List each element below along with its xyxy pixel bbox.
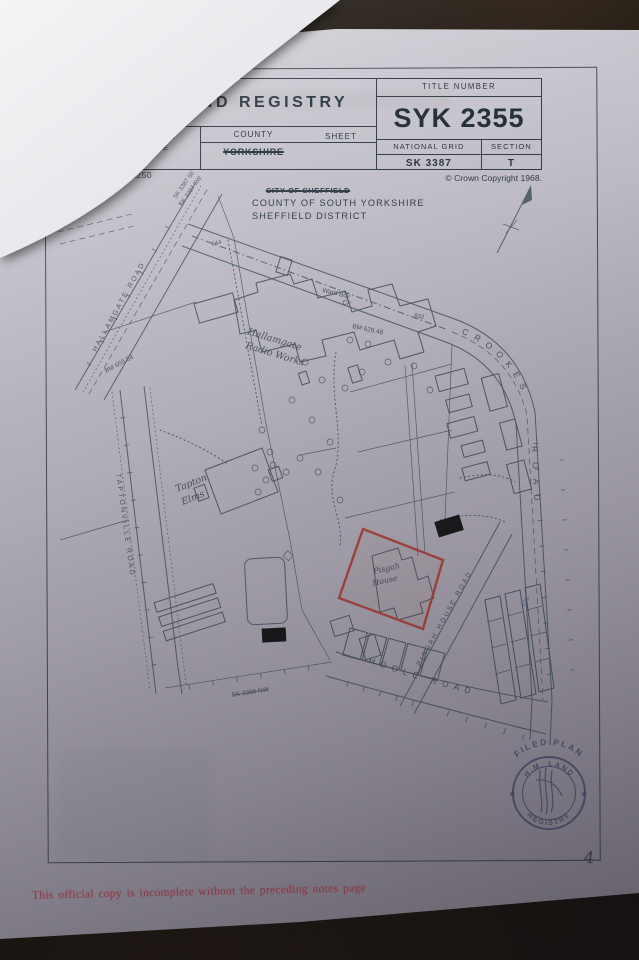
- road-edge-ticks: [87, 203, 575, 740]
- handwritten-page-number: 4: [583, 848, 595, 868]
- county-of-south-yorkshire: COUNTY OF SOUTH YORKSHIRE: [252, 198, 425, 208]
- struck-city-label: CITY OF SHEFFIELD: [258, 186, 358, 195]
- north-arrow-icon: [497, 185, 532, 253]
- section-cell: SECTION T: [482, 140, 541, 169]
- sheet-label: SHEET: [306, 127, 376, 142]
- scale-note: Scale: 1 1250: [93, 170, 152, 180]
- registry-title: H.M. LAND REGISTRY: [89, 79, 376, 126]
- map-label: TAPTONVILLE ROAD: [114, 473, 135, 577]
- tree-symbols: [252, 337, 433, 503]
- header-right: TITLE NUMBER SYK 2355 NATIONAL GRID SK 3…: [377, 79, 541, 169]
- os-plan-reference-cell: ORDNANCE SURVEY PLAN REFERENCE: [89, 127, 201, 169]
- road-crookes: [182, 224, 552, 745]
- county-sheet-headers: COUNTY SHEET: [201, 127, 376, 143]
- stamp-star-right: ★: [581, 790, 588, 798]
- filed-plan-stamp: FILED PLAN H.M. LAND REGISTRY ★: [508, 737, 590, 829]
- sheffield-district: SHEFFIELD DISTRICT: [252, 211, 367, 221]
- county-value-row: YORKSHIRE: [201, 143, 376, 169]
- county-sheet-cell: COUNTY SHEET YORKSHIRE: [201, 127, 376, 169]
- road-taptonville: [112, 386, 186, 694]
- paper-sheet: CROOKES ROAD HOOLE ROAD SK 3387 SESK 338…: [0, 0, 639, 960]
- stamp-filed-plan-text: FILED PLAN: [512, 737, 586, 759]
- stamp-signature-scribble: [536, 768, 562, 814]
- national-grid-value: SK 3387: [377, 155, 481, 169]
- header-table: H.M. LAND REGISTRY ORDNANCE SURVEY PLAN …: [88, 78, 542, 170]
- stamp-star-left: ★: [509, 790, 516, 798]
- grid-section-row: NATIONAL GRID SK 3387 SECTION T: [377, 139, 541, 169]
- national-grid-cell: NATIONAL GRID SK 3387: [377, 140, 482, 169]
- header-left: H.M. LAND REGISTRY ORDNANCE SURVEY PLAN …: [89, 79, 377, 169]
- national-grid-label: NATIONAL GRID: [377, 140, 481, 155]
- map-label: 632: [414, 313, 426, 321]
- map-label: SK 3386 NW: [231, 686, 270, 699]
- map-label: Tapton: [174, 472, 209, 495]
- title-number-value: SYK 2355: [377, 97, 541, 139]
- svg-text:FILED PLAN: FILED PLAN: [512, 737, 586, 759]
- road-label-crookes: CROOKES: [461, 326, 532, 397]
- map-label: BM 628.48: [352, 323, 385, 336]
- county-value-struck: YORKSHIRE: [201, 147, 306, 157]
- section-value: T: [482, 155, 541, 169]
- road-hallamgate: [75, 182, 222, 400]
- crown-copyright: © Crown Copyright 1968.: [400, 173, 542, 183]
- map-label: CF: [342, 299, 352, 308]
- county-label: COUNTY: [201, 127, 306, 142]
- map-linework: CROOKES ROAD HOOLE ROAD SK 3387 SESK 338…: [58, 170, 590, 829]
- photo-of-land-registry-plan: CROOKES ROAD HOOLE ROAD SK 3387 SESK 338…: [0, 0, 639, 960]
- section-label: SECTION: [482, 140, 541, 155]
- svg-text:CROOKES: CROOKES: [461, 326, 532, 397]
- plan-reference-row: ORDNANCE SURVEY PLAN REFERENCE COUNTY SH…: [89, 126, 376, 169]
- title-number-label: TITLE NUMBER: [377, 79, 541, 97]
- map-label: BM 655.54: [104, 354, 135, 375]
- map-label: 578: [522, 596, 531, 608]
